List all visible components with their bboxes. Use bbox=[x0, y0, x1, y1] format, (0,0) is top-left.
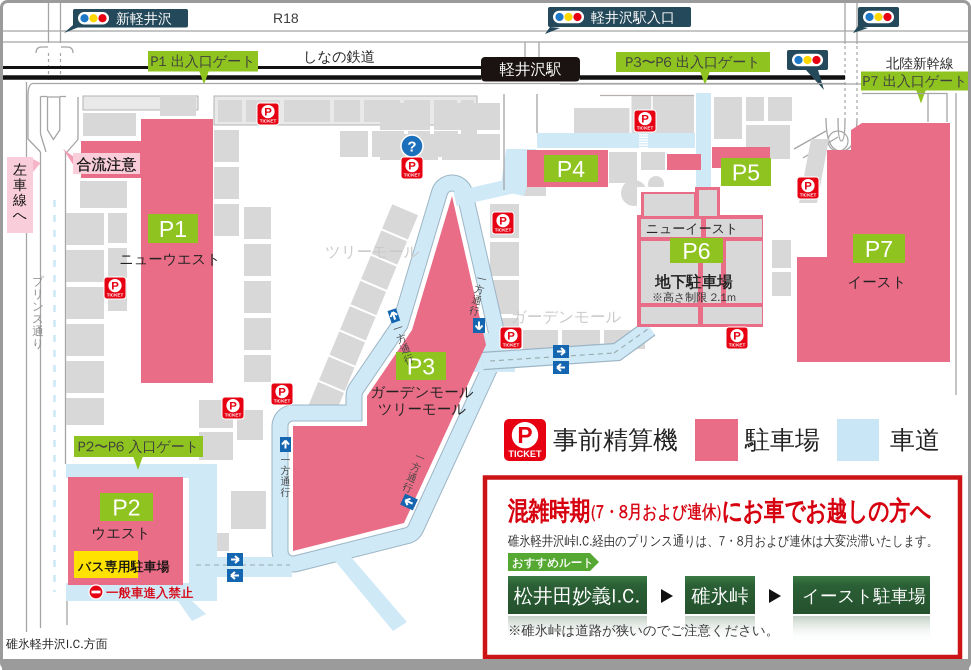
svg-text:P6: P6 bbox=[682, 238, 710, 264]
svg-text:P: P bbox=[264, 106, 272, 118]
svg-text:P: P bbox=[733, 330, 741, 342]
svg-text:P: P bbox=[111, 280, 119, 292]
svg-text:R18: R18 bbox=[273, 10, 299, 26]
svg-text:P: P bbox=[278, 386, 286, 398]
svg-text:P4: P4 bbox=[557, 156, 585, 182]
svg-text:TICKET: TICKET bbox=[503, 343, 520, 348]
svg-text:TICKET: TICKET bbox=[404, 173, 421, 178]
svg-text:TICKET: TICKET bbox=[729, 343, 746, 348]
svg-text:TICKET: TICKET bbox=[495, 228, 512, 233]
svg-text:P: P bbox=[641, 113, 649, 125]
svg-text:TICKET: TICKET bbox=[274, 399, 291, 404]
svg-text:P: P bbox=[507, 330, 515, 342]
svg-text:P: P bbox=[499, 215, 507, 227]
svg-text:P: P bbox=[517, 422, 532, 448]
svg-text:TICKET: TICKET bbox=[508, 449, 542, 459]
svg-text:?: ? bbox=[407, 139, 416, 156]
svg-text:P: P bbox=[408, 160, 416, 172]
svg-text:P2: P2 bbox=[112, 494, 140, 520]
svg-text:TICKET: TICKET bbox=[260, 119, 277, 124]
svg-text:TICKET: TICKET bbox=[637, 126, 654, 131]
svg-text:P: P bbox=[229, 400, 237, 412]
svg-text:TICKET: TICKET bbox=[800, 193, 817, 198]
svg-text:P7: P7 bbox=[865, 236, 893, 262]
svg-text:P: P bbox=[804, 180, 812, 192]
svg-text:P1: P1 bbox=[159, 216, 187, 242]
svg-text:TICKET: TICKET bbox=[107, 293, 124, 298]
svg-text:P5: P5 bbox=[732, 159, 760, 185]
svg-text:TICKET: TICKET bbox=[225, 413, 242, 418]
